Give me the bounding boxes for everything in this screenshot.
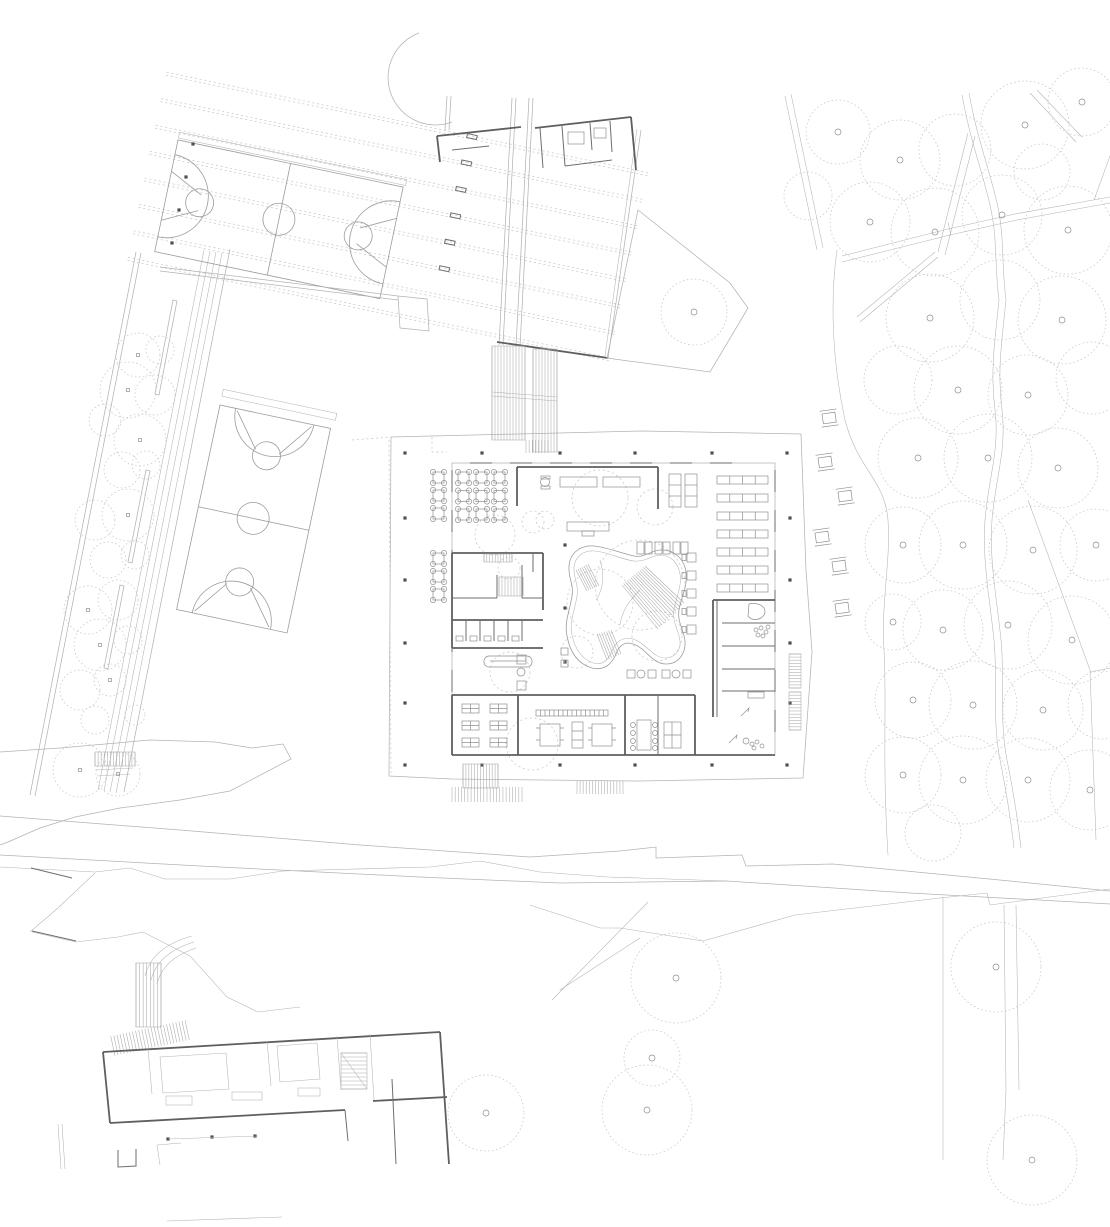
site-plan-drawing xyxy=(0,0,1110,1227)
tree xyxy=(960,260,1040,340)
cafe-table xyxy=(430,505,446,521)
column xyxy=(403,451,406,454)
fan-stair xyxy=(622,566,684,629)
cafe-table xyxy=(455,506,471,522)
desk-group xyxy=(462,738,479,747)
main-building xyxy=(95,142,812,1140)
cafe-table xyxy=(430,487,446,503)
shelf-row xyxy=(717,566,768,574)
canopy-dashed-lines xyxy=(127,71,649,361)
tree xyxy=(125,705,145,725)
tree xyxy=(602,1065,692,1155)
tree xyxy=(661,279,727,345)
cafe-table xyxy=(491,469,507,485)
stair-hatch xyxy=(95,752,135,766)
column xyxy=(170,241,173,244)
tree xyxy=(74,619,126,671)
column xyxy=(558,451,561,454)
library-shelving xyxy=(669,474,768,592)
wc-fixture xyxy=(512,636,519,641)
south-terrace-paths xyxy=(30,768,300,1012)
tree xyxy=(987,1115,1077,1205)
tree xyxy=(1003,670,1083,750)
picnic-table xyxy=(820,409,839,427)
shelf-row xyxy=(717,548,768,556)
column xyxy=(633,451,636,454)
stair-hatch xyxy=(136,963,161,1027)
tree xyxy=(964,581,1052,669)
column xyxy=(785,763,788,766)
tree xyxy=(132,451,160,479)
shelf-stack xyxy=(669,474,681,507)
tree xyxy=(1060,509,1110,581)
tree xyxy=(1068,671,1110,739)
column xyxy=(710,451,713,454)
column xyxy=(633,763,636,766)
service-block xyxy=(452,553,543,667)
desk-group xyxy=(462,704,479,713)
column xyxy=(177,208,180,211)
east-woodland xyxy=(784,68,1110,1160)
cafe-table xyxy=(473,469,489,485)
tree xyxy=(919,501,1007,589)
wall-shelf xyxy=(536,710,608,716)
picnic-table xyxy=(816,453,835,471)
wc-fixture xyxy=(470,636,477,641)
column xyxy=(785,451,788,454)
west-basketball-court xyxy=(177,389,337,633)
column xyxy=(210,1135,213,1138)
tree xyxy=(905,805,961,861)
tree xyxy=(135,375,175,415)
tree xyxy=(878,418,958,498)
tree xyxy=(784,172,832,220)
column xyxy=(184,175,187,178)
column xyxy=(558,763,561,766)
structural-columns xyxy=(166,142,791,1140)
tree xyxy=(1014,144,1070,200)
dashed-circle xyxy=(595,540,685,630)
column xyxy=(403,641,406,644)
existing-building-south xyxy=(58,1032,449,1221)
tree xyxy=(1050,750,1110,830)
dashed-circle xyxy=(536,511,554,529)
tree xyxy=(865,737,941,813)
dashed-circle xyxy=(632,611,682,661)
tree xyxy=(886,274,974,362)
desk-group xyxy=(490,704,507,713)
tree xyxy=(96,752,140,796)
tree xyxy=(989,506,1077,594)
stair-hatch xyxy=(789,654,801,688)
tree xyxy=(1018,276,1106,364)
wc-fixtures xyxy=(456,636,519,641)
stair-hatch xyxy=(789,692,801,730)
column xyxy=(788,578,791,581)
cafe-table xyxy=(430,550,446,566)
tree xyxy=(631,933,721,1023)
fan-stair xyxy=(597,630,621,660)
shelf-row xyxy=(717,584,768,592)
tree xyxy=(100,362,156,418)
tree xyxy=(448,1075,524,1151)
dashed-circle xyxy=(490,652,530,692)
turning-circle-arc xyxy=(388,33,452,125)
column xyxy=(480,451,483,454)
shelf-row xyxy=(717,512,768,520)
tree xyxy=(60,670,100,710)
stair-hatch xyxy=(577,781,623,794)
tree xyxy=(919,736,1007,824)
column xyxy=(788,641,791,644)
stair-hatch xyxy=(484,554,512,562)
cafe-table xyxy=(491,488,507,504)
tree xyxy=(1048,68,1110,136)
south-trees xyxy=(448,922,1077,1205)
tree xyxy=(90,542,126,578)
cafe-table xyxy=(430,586,446,602)
tree xyxy=(830,182,910,262)
stair-hatch xyxy=(526,440,548,453)
tree xyxy=(89,404,121,436)
column xyxy=(403,763,406,766)
column xyxy=(191,142,194,145)
cafe-table xyxy=(455,469,471,485)
column xyxy=(788,516,791,519)
kitchen-servery xyxy=(517,467,658,536)
road-network xyxy=(0,740,1110,1000)
wc-fixture xyxy=(498,636,505,641)
dashed-circle xyxy=(506,718,558,770)
tree xyxy=(981,81,1069,169)
classroom-desks xyxy=(462,704,507,747)
tree xyxy=(865,507,941,583)
picnic-table xyxy=(813,528,832,546)
shelf-row xyxy=(717,476,768,484)
desk-group xyxy=(490,721,507,730)
classroom-strip xyxy=(452,695,775,755)
dashed-circle xyxy=(567,569,633,635)
core-stair-fans xyxy=(576,564,684,660)
tree xyxy=(104,452,140,488)
cafe-table xyxy=(473,506,489,522)
tree xyxy=(116,333,160,377)
plaza-tree xyxy=(661,279,727,345)
picnic-tables xyxy=(813,409,855,617)
cafe-table xyxy=(491,506,507,522)
tree xyxy=(919,114,991,186)
stair-hatch xyxy=(499,577,523,596)
tree xyxy=(81,706,109,734)
study-carrel xyxy=(682,607,696,616)
tree xyxy=(806,100,870,164)
shelf-row xyxy=(717,494,768,502)
wc-fixture xyxy=(456,636,463,641)
terrace-tables xyxy=(430,469,446,602)
west-tree-alley xyxy=(30,249,230,797)
tree xyxy=(860,120,940,200)
tree xyxy=(624,1030,680,1086)
study-carrel xyxy=(682,571,696,580)
central-core xyxy=(566,546,686,669)
column xyxy=(403,578,406,581)
tree xyxy=(944,414,1032,502)
tree xyxy=(864,346,932,414)
woodland-trees xyxy=(784,68,1110,861)
dashed-circle xyxy=(475,515,515,555)
shelf-stack xyxy=(685,474,697,507)
site-plan-page xyxy=(0,0,1110,1227)
desk-group xyxy=(462,721,479,730)
tree xyxy=(94,664,126,696)
wc-fixture xyxy=(484,636,491,641)
study-carrel xyxy=(682,625,696,634)
cafeteria-tables xyxy=(455,469,507,522)
east-room-block xyxy=(713,600,775,750)
alley-trees xyxy=(53,333,175,797)
tree xyxy=(102,489,154,541)
stair-hatch xyxy=(452,787,522,802)
column xyxy=(403,701,406,704)
dashed-circle xyxy=(572,470,628,526)
tree xyxy=(914,346,1002,434)
tree xyxy=(865,594,921,650)
tree xyxy=(903,590,983,670)
column xyxy=(710,763,713,766)
dashed-circle xyxy=(522,511,544,533)
dashed-circle xyxy=(637,489,673,525)
column xyxy=(403,516,406,519)
cafe-table xyxy=(473,488,489,504)
stair-hatch xyxy=(463,764,498,788)
upper-basketball-court xyxy=(127,71,649,361)
column xyxy=(563,606,566,609)
desk-group xyxy=(490,738,507,747)
cafe-table xyxy=(455,488,471,504)
picnic-table xyxy=(836,487,855,505)
tree xyxy=(951,922,1041,1012)
tree xyxy=(1018,428,1098,508)
picnic-table xyxy=(833,599,852,617)
tree xyxy=(121,541,149,569)
pentagon-plaza xyxy=(607,210,748,372)
tree xyxy=(875,662,951,738)
facade-wall-segments xyxy=(452,463,775,755)
cafe-table xyxy=(430,469,446,485)
picnic-table xyxy=(830,557,849,575)
tree xyxy=(1028,596,1110,684)
fan-stair xyxy=(576,564,599,591)
cafe-table xyxy=(430,568,446,584)
tree xyxy=(146,336,174,364)
tree xyxy=(98,580,138,620)
shelf-row xyxy=(717,530,768,538)
column xyxy=(563,543,566,546)
